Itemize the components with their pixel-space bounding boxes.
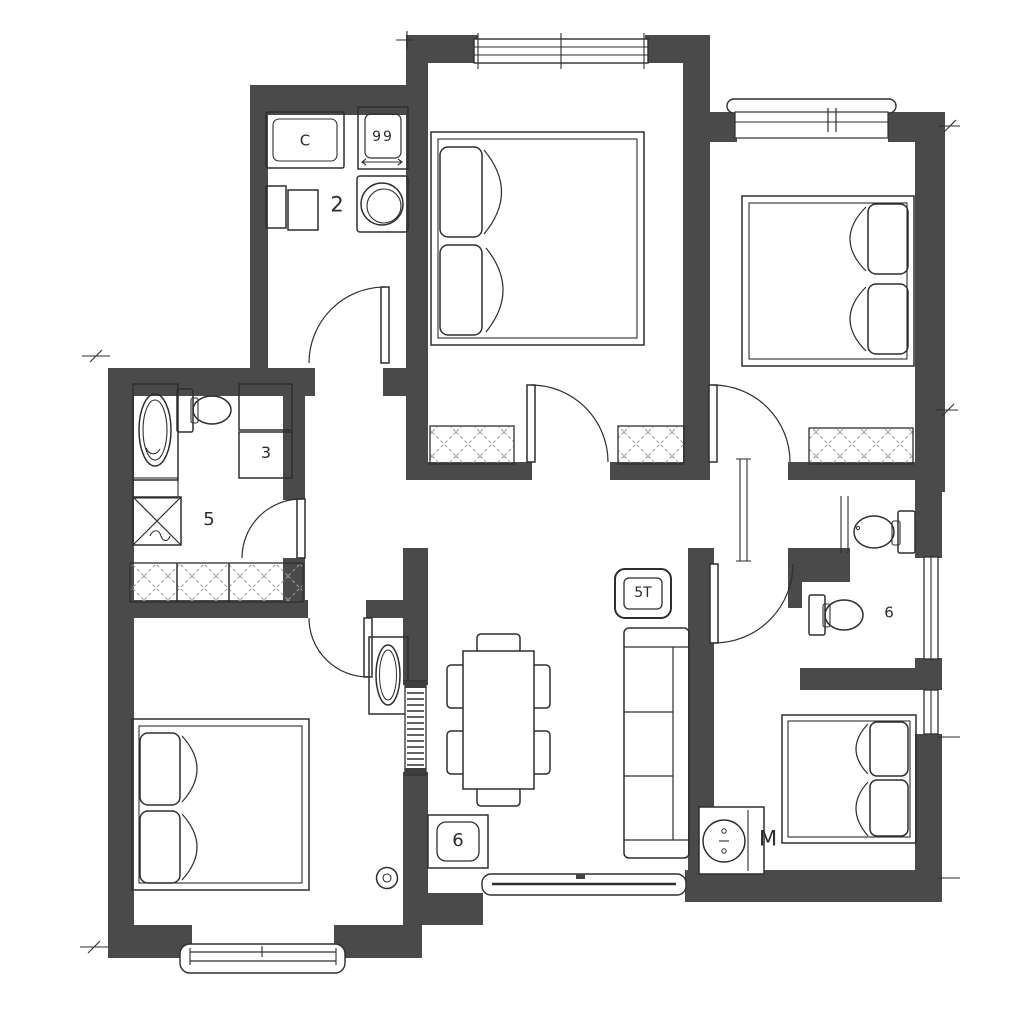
dining-table (447, 634, 550, 806)
window-bed4-bay (180, 944, 345, 973)
toilet-wc-lower (809, 595, 863, 635)
bathroom-floor-hatch (130, 563, 303, 602)
sofa (624, 628, 689, 858)
window-bed2-top (727, 99, 896, 138)
window-bed3-right (924, 690, 938, 734)
kitchen-cabinet (266, 186, 318, 230)
toilet-bathroom (177, 389, 231, 432)
door-bed2 (709, 385, 790, 462)
stove-burners-label: 99 (372, 130, 394, 144)
bed-bedroom4 (132, 719, 309, 890)
bathroom-room-label: 5 (203, 511, 214, 529)
window-wc-right (924, 557, 938, 659)
door-wc-vestibule (710, 564, 793, 643)
entry-unit-label: 6 (452, 832, 463, 850)
entry-door (482, 874, 686, 895)
radiator (405, 681, 426, 775)
door-bathroom (242, 499, 305, 558)
dresser-mirror (369, 637, 408, 714)
bed-bedroom1 (431, 132, 644, 345)
wc-room-label: 6 (884, 606, 894, 621)
bed-bedroom3 (782, 715, 916, 843)
door-bed1 (527, 385, 608, 462)
bed-bedroom2 (742, 196, 914, 366)
bathroom-shelf-label: 3 (261, 445, 271, 461)
tv-unit-label: 5T (634, 586, 651, 600)
plan-drawing (0, 0, 1024, 1024)
wardrobe-hatch-bed1 (430, 426, 684, 464)
wardrobe-hatch-bed2 (809, 428, 913, 464)
kitchen-round-sink (357, 176, 408, 232)
bathroom-shelf (239, 384, 292, 478)
floor-plan: C 99 2 3 5 5T 6 6 M (0, 0, 1024, 1024)
door-kitchen (309, 287, 389, 363)
door-bed4 (309, 618, 372, 677)
shower (133, 497, 181, 545)
bathtub-basin (133, 384, 178, 498)
washing-machine (699, 807, 764, 874)
toilet-wc-upper (854, 511, 915, 553)
window-bed1-top (474, 33, 648, 69)
dimension-ticks (80, 31, 960, 953)
hall-opening-lines (736, 459, 848, 561)
kitchen-room-label: 2 (330, 195, 343, 216)
washing-machine-label: M (759, 829, 777, 850)
floor-outlet (377, 868, 398, 889)
kitchen-counter-label: C (300, 134, 310, 149)
